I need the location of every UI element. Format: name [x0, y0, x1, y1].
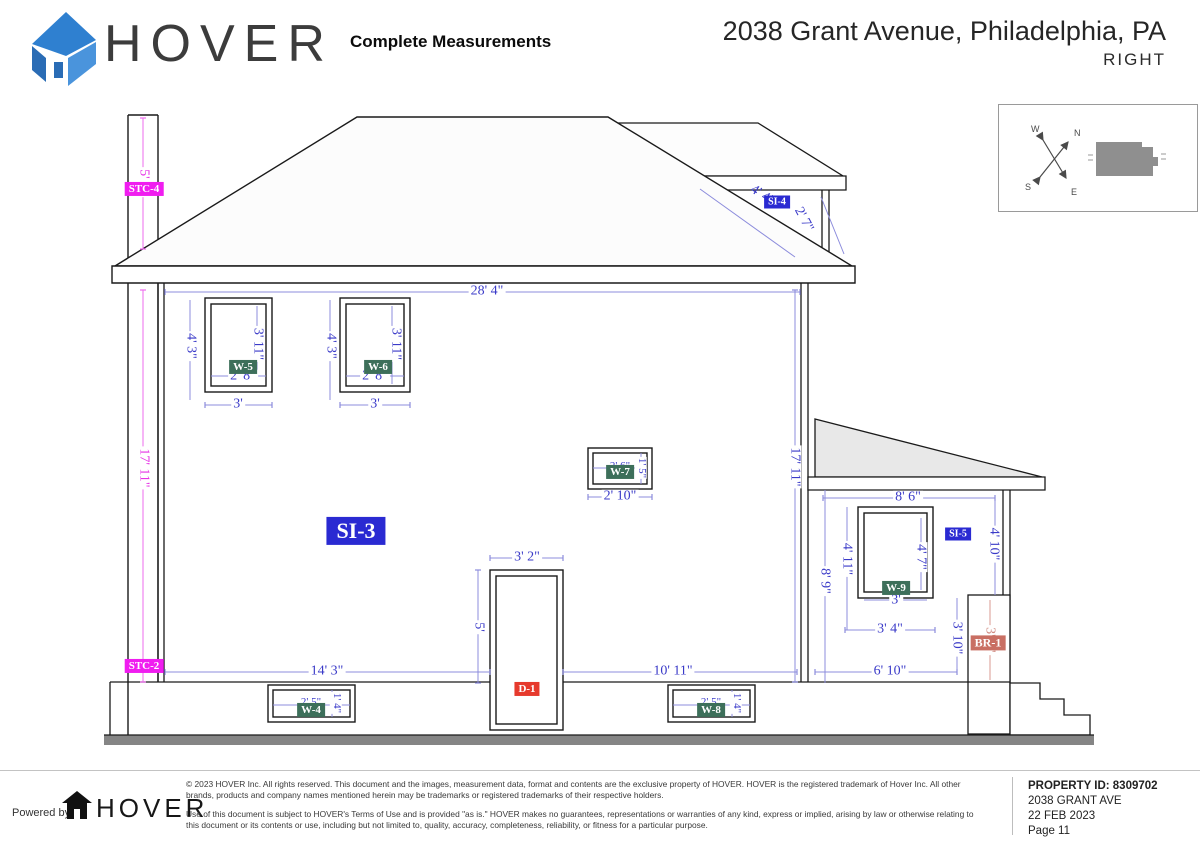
dimension-label: 10' 11"	[651, 665, 694, 680]
dimension-label: 17' 11"	[136, 446, 151, 489]
dimension-label: 17' 11"	[787, 445, 802, 488]
tag-d1: D-1	[514, 682, 539, 696]
tag-si4: SI-4	[764, 196, 790, 209]
porch-roof	[808, 419, 1045, 490]
dimension-label: 14' 3"	[309, 665, 346, 680]
compass-south-label: S	[1025, 182, 1031, 192]
tag-w5: W-5	[229, 360, 257, 374]
tag-w8: W-8	[697, 703, 725, 717]
dimension-label: 8' 9"	[817, 566, 832, 596]
dimension-label: 4' 11"	[839, 541, 854, 577]
dimension-label: 2' 10"	[602, 490, 639, 505]
dimension-label: 4' 10"	[986, 526, 1001, 563]
ground	[104, 735, 1094, 745]
dimension-label: 3'	[889, 594, 903, 609]
dimension-label: 4' 3"	[183, 331, 198, 361]
elevation-drawing	[0, 0, 1200, 843]
dimension-label: 28' 4"	[469, 285, 506, 300]
tag-si3: SI-3	[326, 517, 385, 545]
dimension-label: 3'	[231, 398, 245, 413]
compass-north-label: N	[1074, 128, 1081, 138]
dimension-label: 4' 3"	[323, 331, 338, 361]
tag-stc4: STC-4	[125, 182, 164, 196]
dimension-label: 3' 2"	[512, 551, 542, 566]
tag-stc2: STC-2	[125, 659, 164, 673]
tag-w7: W-7	[606, 465, 634, 479]
tag-si5: SI-5	[945, 528, 971, 541]
tag-br1: BR-1	[971, 635, 1006, 650]
dimension-label: 6' 10"	[872, 665, 909, 680]
dimension-label: 3'	[368, 398, 382, 413]
building-footprint-icon	[1088, 142, 1166, 176]
entry-steps	[1010, 683, 1090, 735]
dimension-label: 3' 11"	[388, 326, 403, 362]
dimension-label: 1' 4"	[330, 692, 342, 714]
dimension-label: 3' 11"	[250, 326, 265, 362]
page: HOVER Complete Measurements 2038 Grant A…	[0, 0, 1200, 843]
dimension-label: 8' 6"	[893, 491, 923, 506]
tag-w4: W-4	[297, 703, 325, 717]
tag-w6: W-6	[364, 360, 392, 374]
dimension-label: 3' 4"	[875, 623, 905, 638]
dimension-label: 1' 4"	[730, 692, 742, 714]
dimension-label: 5'	[471, 620, 486, 634]
compass-west-label: W	[1031, 124, 1040, 134]
dimension-label: 4' 7"	[913, 542, 928, 572]
brick-pier	[968, 595, 1010, 734]
compass-east-label: E	[1071, 187, 1077, 197]
dimension-label: 1' 5"	[635, 457, 647, 479]
tag-w9: W-9	[882, 581, 910, 595]
compass-arrows-icon	[1040, 140, 1068, 178]
dimension-label: 3' 10"	[949, 620, 964, 657]
